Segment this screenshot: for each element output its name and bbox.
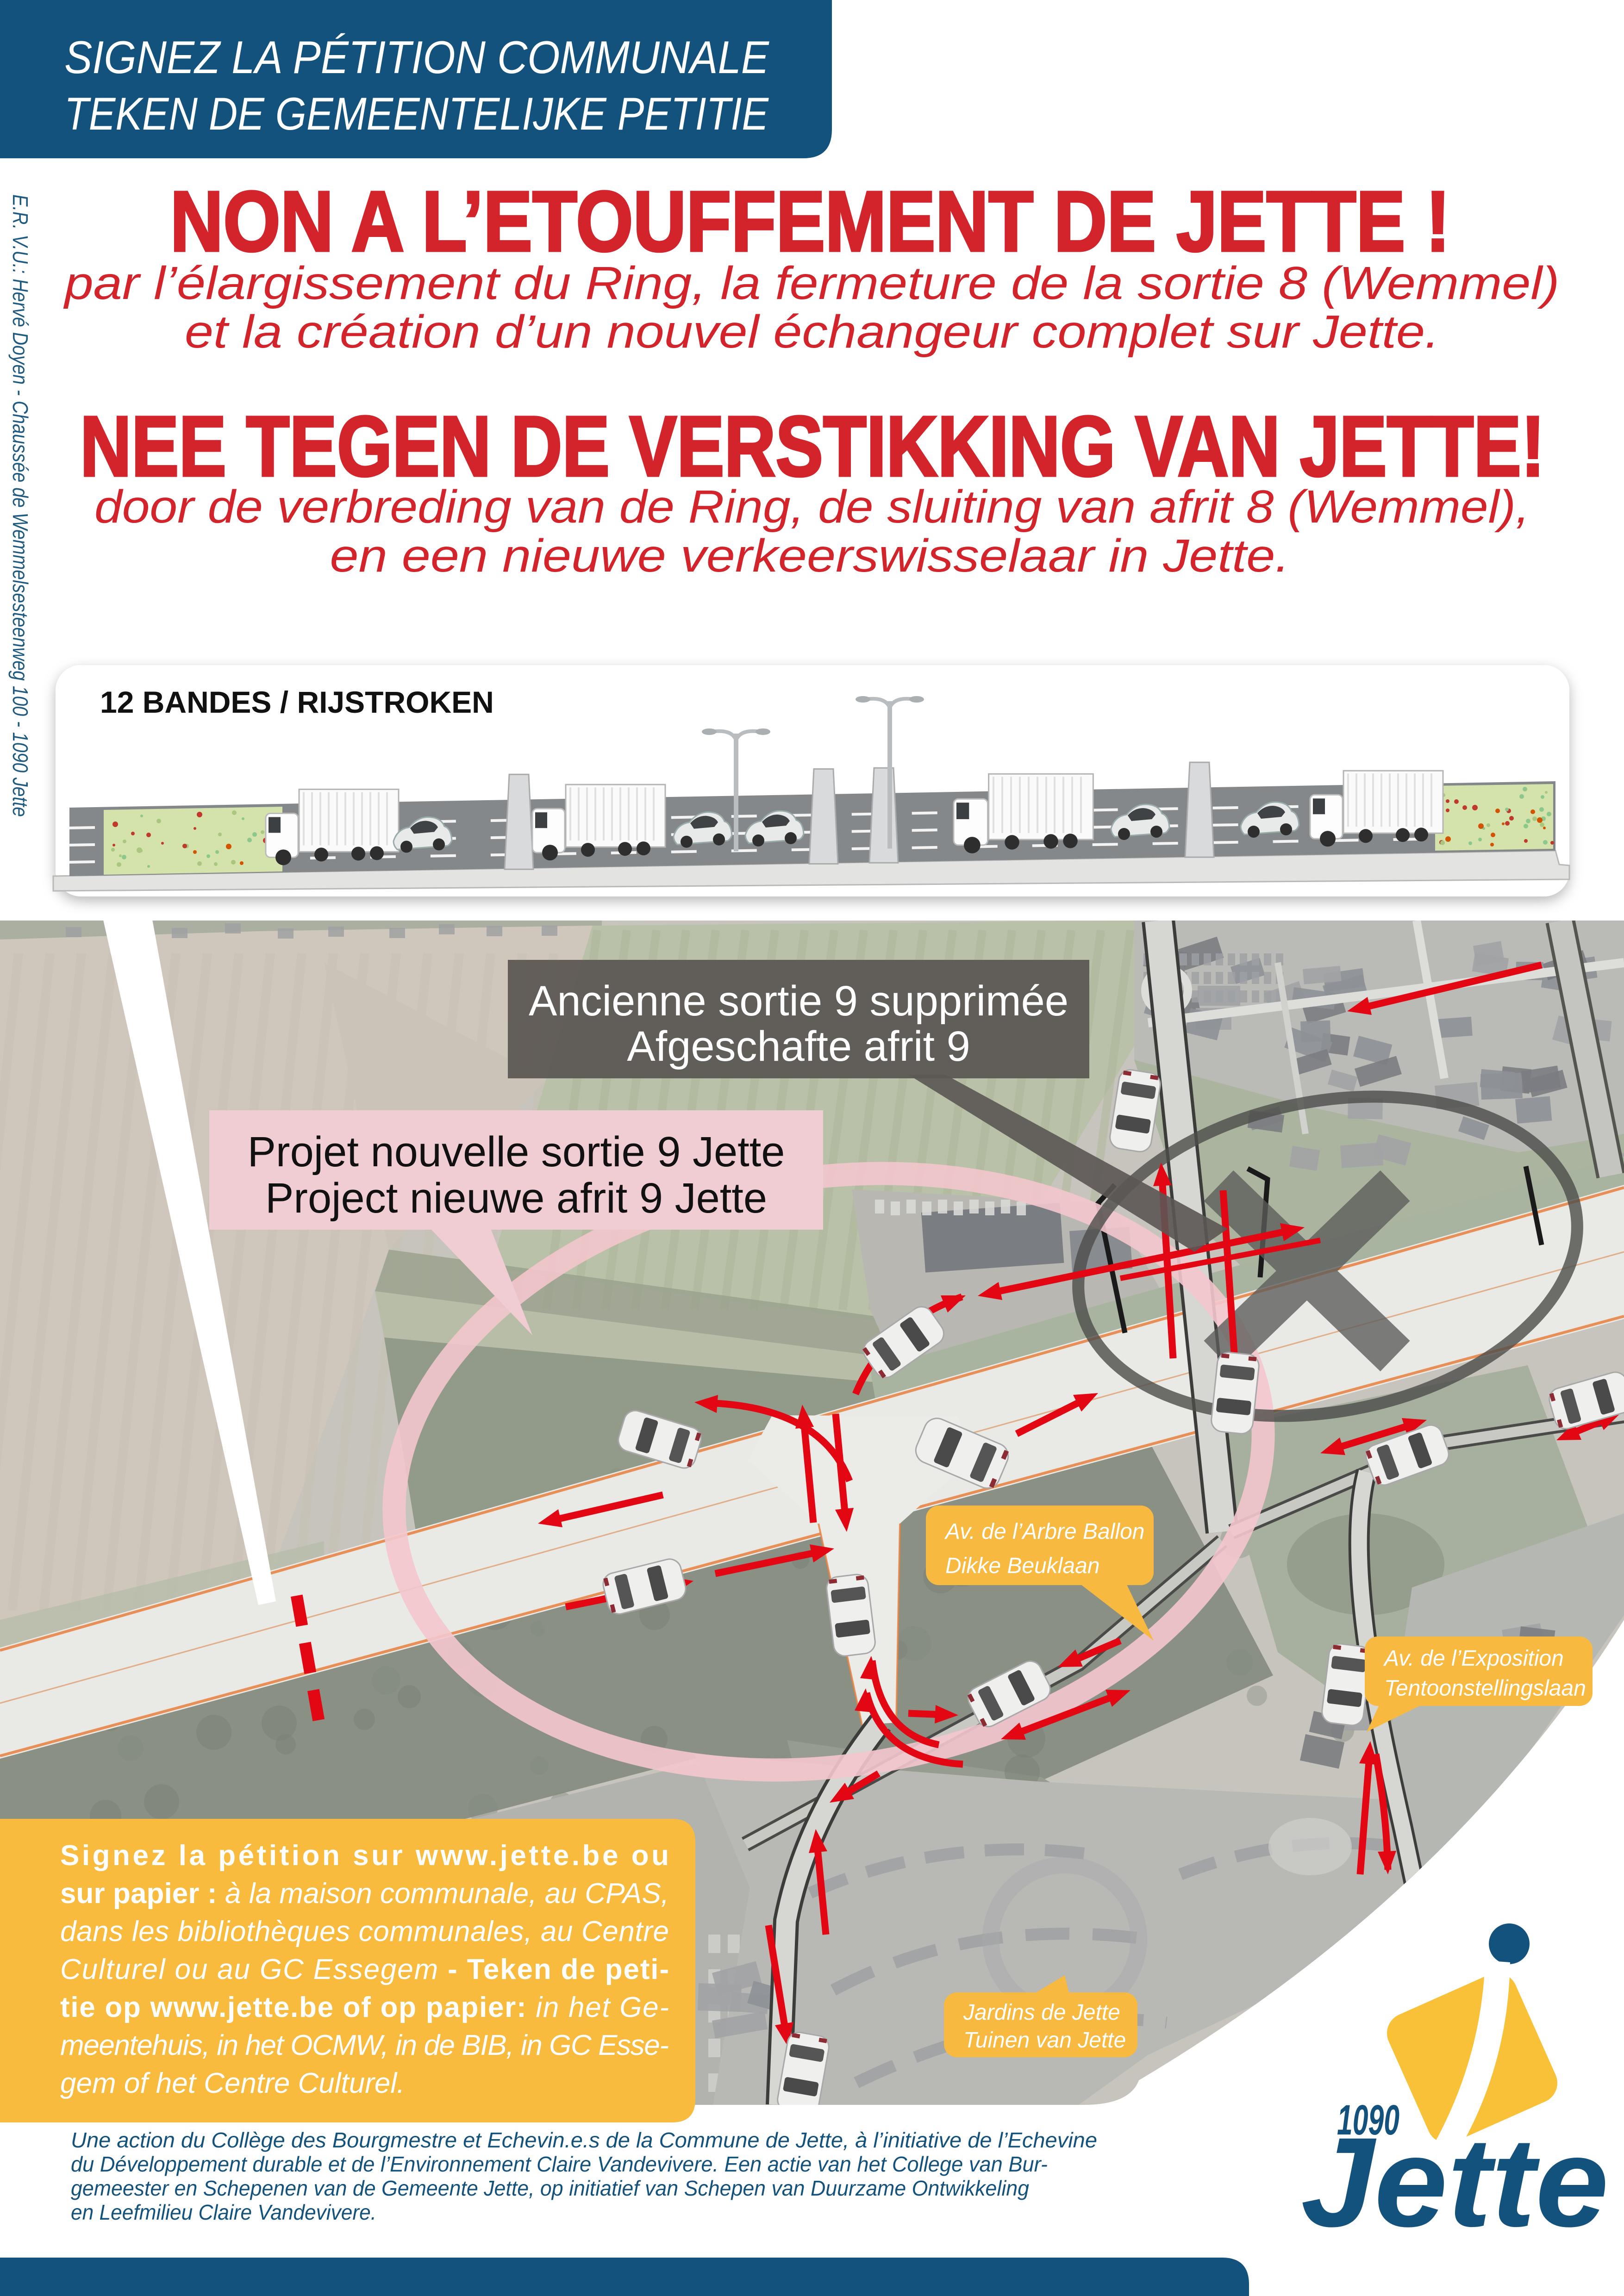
svg-text:Ancienne sortie 9 supprimée: Ancienne sortie 9 supprimée <box>529 977 1068 1025</box>
svg-text:et la création d’un nouvel éch: et la création d’un nouvel échangeur com… <box>185 306 1439 358</box>
svg-text:meentehuis, in het OCMW, in de: meentehuis, in het OCMW, in de BIB, in G… <box>60 2029 669 2061</box>
svg-text:Tentoonstellingslaan: Tentoonstellingslaan <box>1384 1676 1586 1701</box>
svg-text:Culturel ou au GC Essegem - Te: Culturel ou au GC Essegem - Teken de pet… <box>60 1954 669 1985</box>
svg-text:sur papier : à la maison commu: sur papier : à la maison communale, au C… <box>60 1878 669 1910</box>
svg-text:Av. de l’Arbre Ballon: Av. de l’Arbre Ballon <box>944 1519 1144 1544</box>
svg-text:en een nieuwe verkeerswisselaa: en een nieuwe verkeerswisselaar in Jette… <box>330 530 1290 582</box>
svg-text:du Développement durable et de: du Développement durable et de l’Environ… <box>71 2152 1048 2176</box>
svg-text:SIGNEZ LA PÉTITION COMMUNALE: SIGNEZ LA PÉTITION COMMUNALE <box>64 31 769 83</box>
svg-text:door de verbreding van de Ring: door de verbreding van de Ring, de sluit… <box>94 481 1530 533</box>
svg-text:12 BANDES / RIJSTROKEN: 12 BANDES / RIJSTROKEN <box>100 685 494 719</box>
svg-text:tie op www.jette.be of op papi: tie op www.jette.be of op papier: in het… <box>60 1991 669 2023</box>
svg-text:gem of het Centre Culturel.: gem of het Centre Culturel. <box>60 2067 405 2099</box>
svg-text:TEKEN DE GEMEENTELIJKE PETITIE: TEKEN DE GEMEENTELIJKE PETITIE <box>64 88 769 139</box>
svg-text:gemeester en Schepenen van de: gemeester en Schepenen van de Gemeente J… <box>71 2176 1029 2200</box>
svg-text:Av. de l’Exposition: Av. de l’Exposition <box>1383 1646 1564 1671</box>
svg-text:Signez la pétition sur www.jet: Signez la pétition sur www.jette.be ou <box>60 1840 669 1872</box>
svg-text:Jardins de Jette: Jardins de Jette <box>963 2000 1120 2025</box>
svg-text:Dikke Beuklaan: Dikke Beuklaan <box>945 1554 1100 1578</box>
svg-text:dans les bibliothèques communa: dans les bibliothèques communales, au Ce… <box>60 1916 669 1948</box>
svg-text:Project nieuwe afrit 9 Jette: Project nieuwe afrit 9 Jette <box>265 1175 767 1222</box>
svg-text:NON A L’ETOUFFEMENT DE JETTE !: NON A L’ETOUFFEMENT DE JETTE ! <box>170 174 1450 269</box>
svg-text:en Leefmilieu Claire Vandevive: en Leefmilieu Claire Vandevivere. <box>71 2200 376 2224</box>
svg-text:Projet nouvelle sortie 9 Jette: Projet nouvelle sortie 9 Jette <box>248 1128 785 1176</box>
svg-text:par l’élargissement du Ring, l: par l’élargissement du Ring, la fermetur… <box>63 257 1559 309</box>
svg-text:NEE TEGEN DE VERSTIKKING VAN J: NEE TEGEN DE VERSTIKKING VAN JETTE! <box>80 399 1545 494</box>
svg-text:E.R. V.U.: Hervé Doyen - Chaus: E.R. V.U.: Hervé Doyen - Chaussée de Wem… <box>8 194 32 817</box>
svg-text:Tuinen van Jette: Tuinen van Jette <box>963 2028 1126 2053</box>
svg-text:Une action du Collège des Bour: Une action du Collège des Bourgmestre et… <box>71 2128 1097 2152</box>
svg-text:Jette: Jette <box>1301 2111 1609 2253</box>
svg-text:Afgeschafte afrit 9: Afgeschafte afrit 9 <box>627 1023 970 1070</box>
